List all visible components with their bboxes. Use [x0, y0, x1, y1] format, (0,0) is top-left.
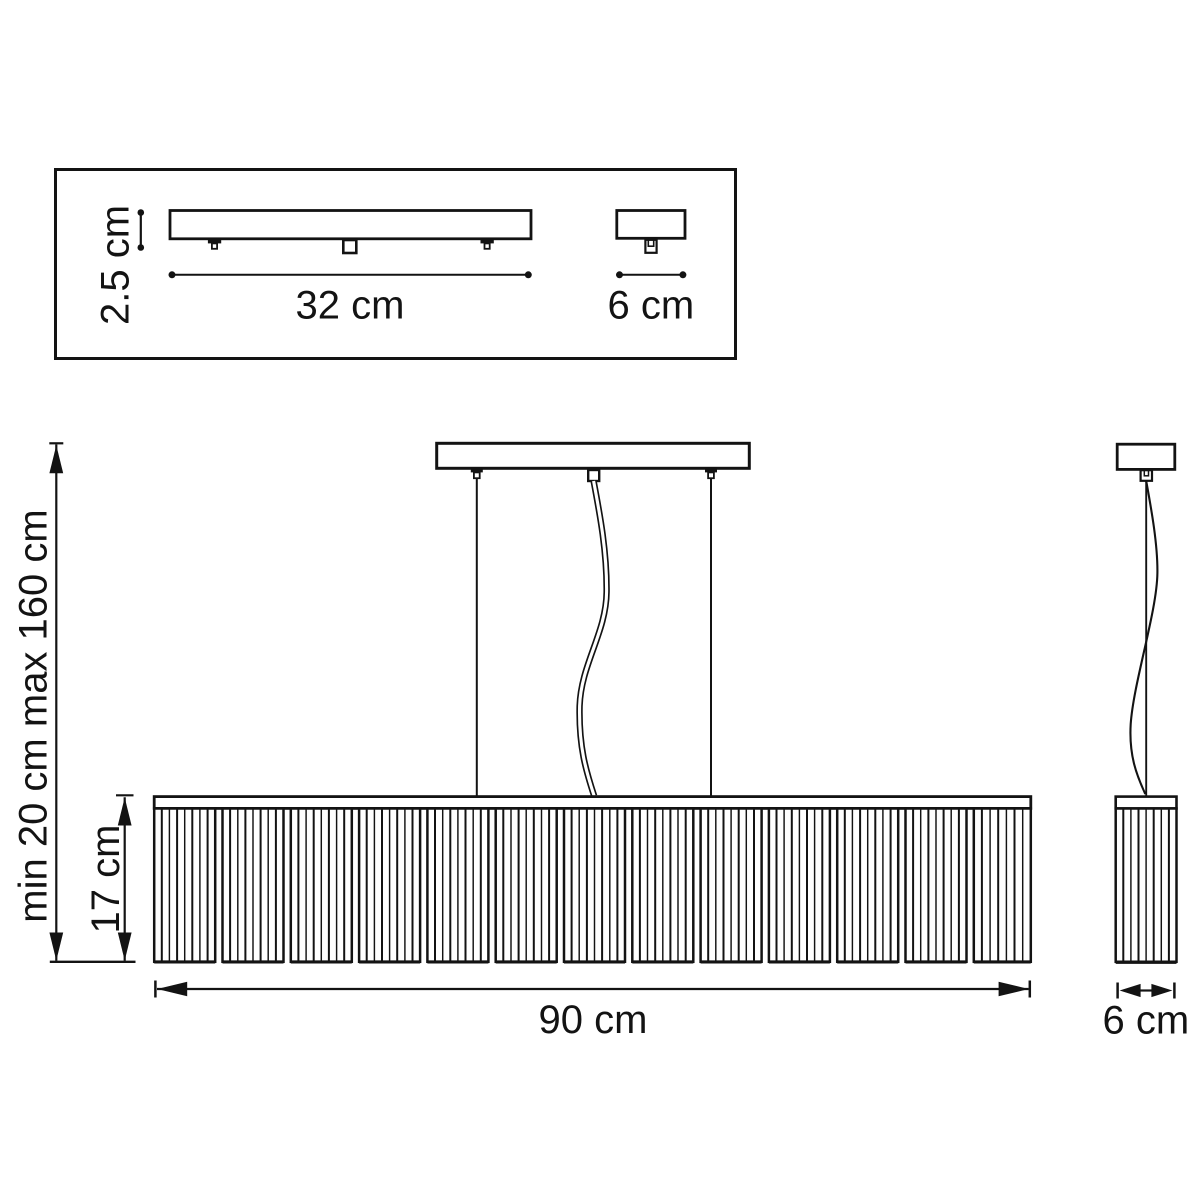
- svg-text:min 20 cm max 160 cm: min 20 cm max 160 cm: [12, 509, 56, 922]
- svg-text:32 cm: 32 cm: [296, 284, 405, 328]
- svg-text:17 cm: 17 cm: [84, 825, 128, 934]
- svg-text:6 cm: 6 cm: [607, 284, 694, 328]
- svg-text:2.5 cm: 2.5 cm: [94, 205, 138, 325]
- svg-text:90 cm: 90 cm: [539, 998, 648, 1042]
- svg-text:6 cm: 6 cm: [1102, 998, 1189, 1042]
